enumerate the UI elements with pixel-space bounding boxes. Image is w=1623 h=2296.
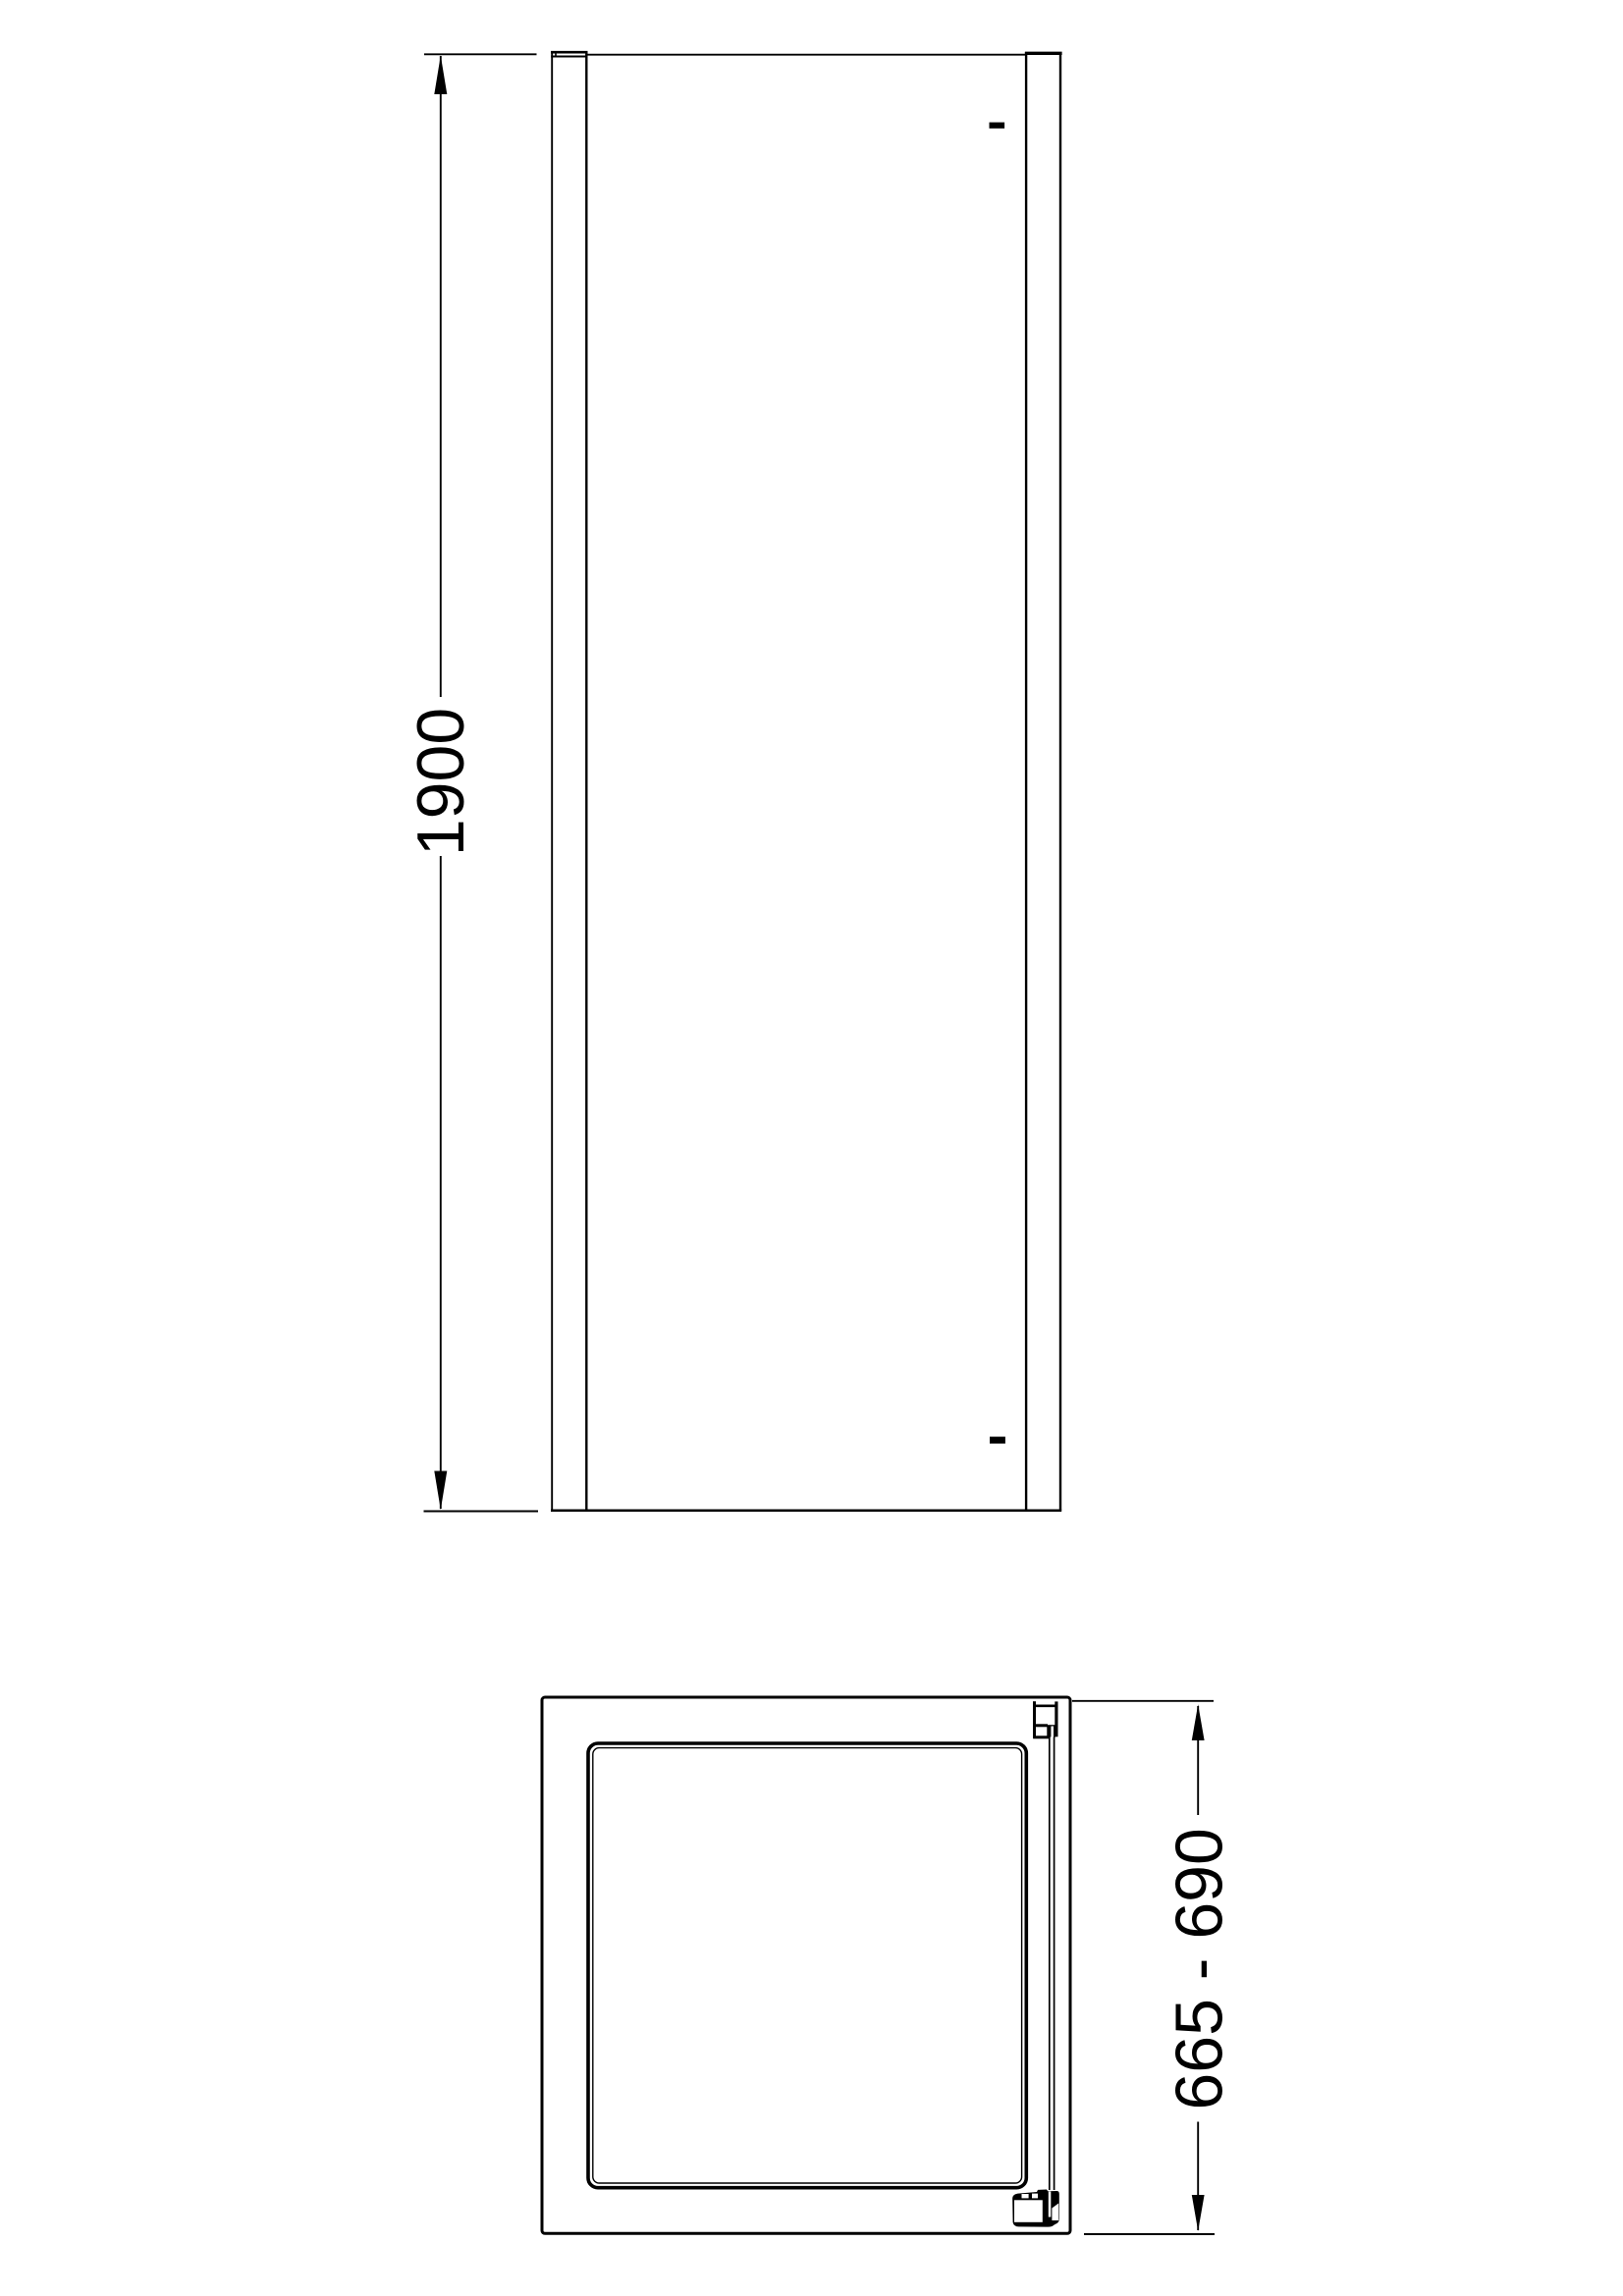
svg-text:665 - 690: 665 - 690: [1162, 1828, 1236, 2109]
svg-text:1900: 1900: [404, 708, 478, 856]
